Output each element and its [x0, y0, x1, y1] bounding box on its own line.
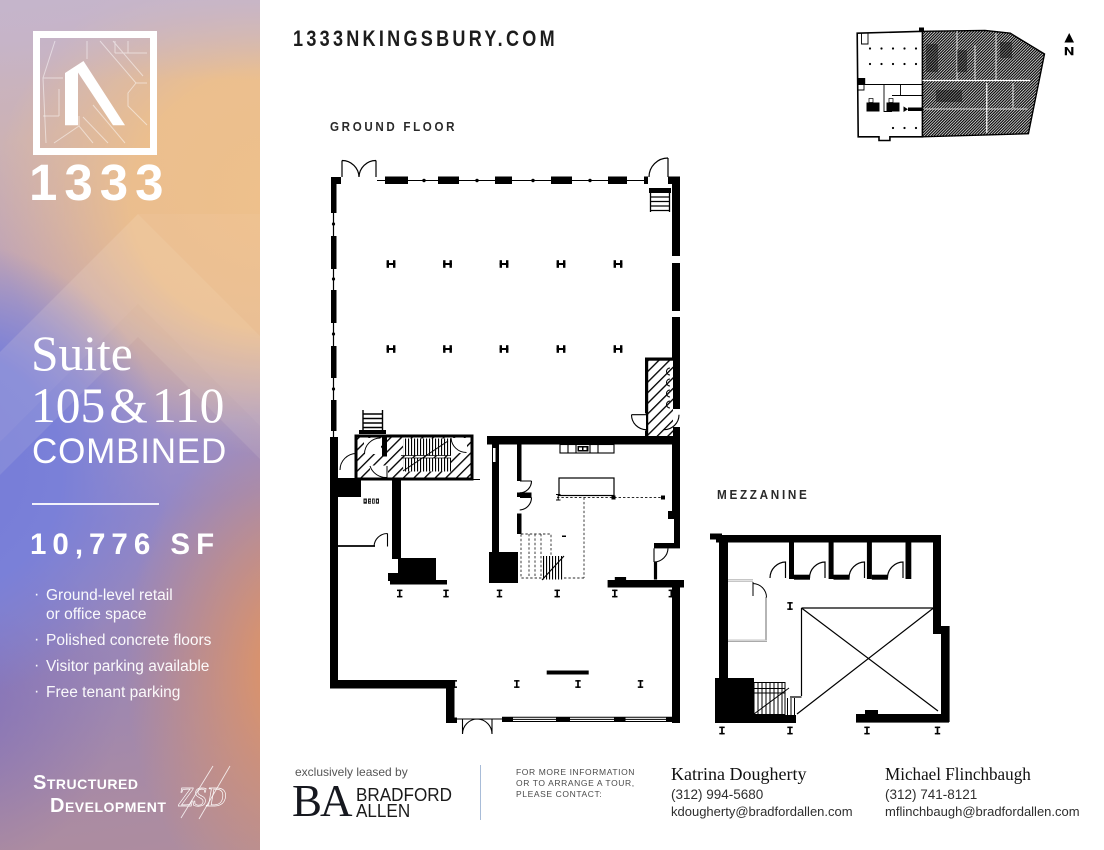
svg-text:ZSD: ZSD — [178, 782, 227, 812]
